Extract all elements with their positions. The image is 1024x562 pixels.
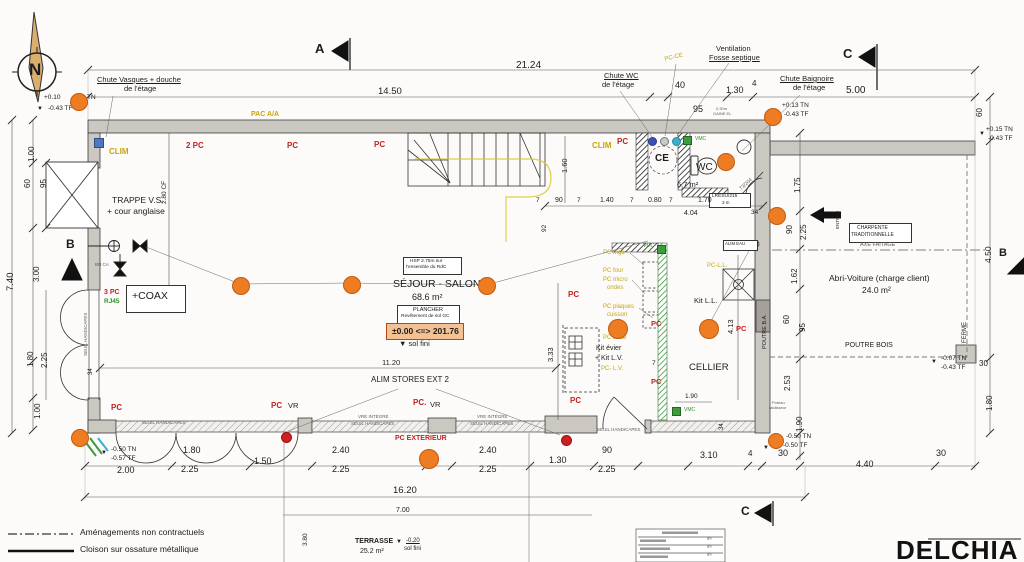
plan-label: + Kit L.V. xyxy=(595,355,623,362)
plan-label: 1.80 xyxy=(183,446,201,455)
plan-label: 1.75 xyxy=(794,177,802,193)
spot-marker xyxy=(717,153,735,171)
plan-label: 2.25 xyxy=(479,465,497,474)
utility-point-cyan xyxy=(672,137,681,146)
trappe-bay xyxy=(46,162,98,228)
plan-label: 1.00 xyxy=(34,403,42,419)
plan-label: VMC xyxy=(643,244,654,249)
plan-label: 4.40 xyxy=(856,460,874,469)
plan-label: 1.62 xyxy=(791,268,799,284)
level-arrow-icon: ▼ xyxy=(101,450,107,456)
level-mark: -0.50 TN xyxy=(111,447,136,454)
plan-label: PC xyxy=(617,138,628,146)
room-wc: WC xyxy=(696,163,713,173)
plan-label: cuisson xyxy=(607,312,627,318)
plan-label: 4.04 xyxy=(684,210,698,217)
plan-label: 16.20 xyxy=(393,486,417,496)
plan-label: CHARPENTE xyxy=(857,226,888,231)
plan-label: 60 xyxy=(976,108,984,117)
plan-label: m² xyxy=(707,545,712,549)
plan-label: -0.43 TF xyxy=(941,365,965,372)
plan-label: 90 xyxy=(786,225,794,234)
plan-label: GAINE EL xyxy=(713,112,731,116)
plan-label: VR xyxy=(430,401,440,409)
plan-label: 3.10 xyxy=(700,451,718,460)
plan-label: Fosse septique xyxy=(709,54,760,62)
plan-label: 0.80 xyxy=(648,197,662,204)
plan-label: CLIM xyxy=(109,148,129,156)
plan-label: SEUIL HANDICAPES xyxy=(351,422,394,427)
plan-label: Revêtement de sol GC xyxy=(401,315,450,320)
compass-icon xyxy=(12,12,62,102)
plan-label: 2.40 xyxy=(332,446,350,455)
plan-label: VRE INTÉGRÉ xyxy=(358,415,389,420)
pc-point xyxy=(561,435,572,446)
vmc-point xyxy=(683,136,692,145)
pc-point xyxy=(281,432,292,443)
legend-item-cloison: Cloison sur ossature métallique xyxy=(80,545,199,554)
plan-label: TN xyxy=(87,95,96,102)
coax-label: +COAX xyxy=(132,291,168,302)
level-mark: +0.15 TN xyxy=(986,127,1013,134)
spot-marker xyxy=(764,108,782,126)
spot-marker xyxy=(768,433,784,449)
plan-label: PC xyxy=(374,141,385,149)
plan-label: + cour anglaise xyxy=(107,207,165,216)
company-name: DELCHIA xyxy=(896,537,1019,562)
room-sejour-area: 68.6 m² xyxy=(412,293,443,302)
plan-label: 1.30 xyxy=(726,86,744,95)
room-cellier: CELLIER xyxy=(689,363,729,373)
dim: 14.50 xyxy=(378,87,402,97)
plan-label: FERME xyxy=(962,322,968,343)
section-c-label: C xyxy=(843,47,852,60)
plan-label: PC xyxy=(651,378,661,386)
plan-label: PC xyxy=(570,397,581,405)
plan-label: POUTRE B.A. xyxy=(763,314,769,349)
plan-label: -0.57 TF xyxy=(111,456,135,463)
plan-label: TRADITIONNELLE xyxy=(851,233,894,238)
plan-label: POUTRE BOIS xyxy=(845,342,893,349)
plan-label: 2.00 xyxy=(117,466,135,475)
note-ventilation: Ventilation xyxy=(716,45,751,53)
plan-label: sol fini xyxy=(404,546,421,552)
plan-label: 2.25 xyxy=(800,224,808,240)
plan-label: 2.25 xyxy=(181,465,199,474)
plan-label: 2.25 xyxy=(332,465,350,474)
plan-label: 1.80 xyxy=(27,351,35,367)
compass-north-label: N xyxy=(29,61,41,78)
plan-label: SEUIL HANDICAPES xyxy=(597,428,640,433)
plan-label: 3.33 xyxy=(547,347,555,362)
plan-label: 3.80 xyxy=(303,533,310,546)
plan-label: 1.30 xyxy=(549,456,567,465)
vmc-point xyxy=(657,245,666,254)
plan-label: 95 xyxy=(799,323,807,332)
plan-label: ▼ sol fini xyxy=(399,340,430,348)
plan-label: VR xyxy=(288,402,298,410)
room-terrasse: TERRASSE xyxy=(355,538,393,545)
level-arrow-icon: ▼ xyxy=(763,445,769,451)
plan-label: 1.90 xyxy=(685,394,698,401)
metal-partition xyxy=(658,243,667,420)
plan-label: -0.20 xyxy=(406,538,420,544)
plan-label: 2.53 xyxy=(784,375,792,391)
note-chute-wc: Chute WC xyxy=(604,72,639,80)
plan-label: 7 xyxy=(536,198,540,205)
plan-label: PC. xyxy=(413,399,426,407)
plan-label: -0.43 TF xyxy=(48,106,72,113)
plan-label: 60 xyxy=(24,179,32,188)
plan-label: -0.43 TF xyxy=(784,112,808,119)
legend-item-amenagements: Aménagements non contractuels xyxy=(80,528,204,537)
plan-label: m² xyxy=(707,537,712,541)
spot-marker xyxy=(419,449,439,469)
plan-label: 3 PC xyxy=(104,289,120,296)
plan-label: PC xyxy=(568,291,579,299)
clim-unit xyxy=(94,138,104,148)
plan-label: PC-L.L. xyxy=(707,263,727,269)
spot-marker xyxy=(699,319,719,339)
plan-label: VMC xyxy=(684,408,695,413)
leader-lines xyxy=(106,63,800,435)
plan-label: 1.90 xyxy=(796,416,804,432)
left-wall-opening xyxy=(89,290,99,400)
spot-marker xyxy=(478,277,496,295)
plan-label: de l'étage xyxy=(124,85,156,93)
plan-label: BN CA xyxy=(95,263,109,268)
plan-label: PC EXTERIEUR xyxy=(395,435,447,442)
utility-point-blue xyxy=(648,137,657,146)
kit-lave-linge: Kit L.L. xyxy=(694,297,717,305)
plan-label: PC xyxy=(736,325,746,333)
chauffe-eau-label: CE xyxy=(655,154,669,164)
level-mark: -0.50 TN xyxy=(786,434,811,441)
plan-label: 1.40 xyxy=(600,197,614,204)
plan-label: de l'étage xyxy=(602,81,634,89)
plan-label: PC- L.V. xyxy=(601,366,623,372)
note-trappe: TRAPPE V.S. xyxy=(112,196,164,205)
plan-label: 60 xyxy=(783,315,791,324)
plan-label: 7.00 xyxy=(396,507,410,514)
level-arrow-icon: ▼ xyxy=(37,106,43,112)
room-sejour: SÉJOUR - SALON xyxy=(393,279,481,290)
plan-label: PC frigo xyxy=(603,250,625,256)
kit-evier: Kit évier xyxy=(596,345,621,352)
plan-label: 2.25 xyxy=(41,352,49,368)
plan-label: VMC xyxy=(695,137,706,142)
plan-label: PC plaques xyxy=(603,304,634,310)
plan-label: 2.25 xyxy=(598,465,616,474)
plan-label: m² xyxy=(707,553,712,557)
plan-label: VRE INTÉGRÉ xyxy=(477,415,508,420)
plan-label: PC micro xyxy=(603,277,628,283)
plan-label: 4.50 xyxy=(984,246,993,263)
plan-label: 4 xyxy=(748,450,752,458)
plan-label: 1.50 xyxy=(254,457,272,466)
section-c-label-bottom: C xyxy=(741,505,750,517)
plan-label: 34 xyxy=(719,423,725,430)
plan-label: 2.40 xyxy=(479,446,497,455)
plan-label: 1.70 xyxy=(698,197,712,204)
plan-label: 7 xyxy=(630,198,634,205)
room-terrasse-area: 25.2 m² xyxy=(360,548,384,555)
spot-marker xyxy=(71,429,89,447)
plan-label: 34 xyxy=(751,210,758,217)
plan-label: 3.00 xyxy=(33,266,41,282)
plan-label: PC xyxy=(651,320,661,328)
plan-label: 1.80 xyxy=(986,395,994,411)
plan-label: 5.00 xyxy=(846,86,865,96)
plan-label: 30 xyxy=(979,360,988,368)
plan-label: -0.50 TF xyxy=(783,443,807,450)
utility-point-gray xyxy=(660,137,669,146)
plan-label: 40 xyxy=(675,81,685,90)
plan-label: PC xyxy=(271,402,282,410)
level-arrow-icon: ▼ xyxy=(396,539,402,545)
note-alim-stores: ALIM STORES EXT 2 xyxy=(371,376,449,384)
floor-plan-scan: NChute Vasques + douchede l'étageA21.241… xyxy=(0,0,1024,562)
plan-label: de l'étage xyxy=(793,84,825,92)
plan-label: 4.13 xyxy=(727,319,735,334)
plan-label: 11.20 xyxy=(382,359,400,367)
room-wc-area: 6.7 m² xyxy=(677,181,698,189)
note-chute-vasques: Chute Vasques + douche xyxy=(97,76,181,84)
plan-label: raidisseur xyxy=(769,406,786,410)
plan-label: PC xyxy=(287,142,298,150)
plan-label: ALIM EAU xyxy=(725,242,745,246)
section-a-label: A xyxy=(315,42,324,55)
section-b-label-right: B xyxy=(999,248,1007,259)
plan-label: PLANCHER xyxy=(413,308,443,314)
plan-label: AXE FAITAGE xyxy=(860,243,895,249)
plan-label: 7 xyxy=(652,361,656,368)
plan-label: SEUIL HANDICAPES xyxy=(142,421,185,426)
spot-marker xyxy=(343,276,361,294)
dim-total-width: 21.24 xyxy=(516,61,541,71)
plan-label: 2.80 CF xyxy=(162,181,169,204)
level-mark: +0.13 TN xyxy=(782,103,809,110)
level-mark: +0.10 xyxy=(44,95,60,102)
plan-label: 30 xyxy=(936,449,946,458)
plan-label: 3 m xyxy=(722,201,730,206)
plan-label: 2 PC xyxy=(186,142,204,150)
note-chute-baignoire: Chute Baignoire xyxy=(780,75,834,83)
plan-label: 92 xyxy=(542,225,549,232)
plan-label: 95 xyxy=(693,105,703,114)
spot-marker xyxy=(70,93,88,111)
plan-label: 7 xyxy=(669,198,673,205)
plan-label: 90 xyxy=(602,446,612,455)
plan-label: 1.60 xyxy=(561,158,569,173)
plan-label: PAC A/A xyxy=(251,111,279,118)
plan-label: SEUIL HANDICAPES xyxy=(470,422,513,427)
plan-label: 4 xyxy=(752,80,756,88)
spot-marker xyxy=(768,207,786,225)
level-arrow-icon: ▼ xyxy=(931,359,937,365)
plan-label: 7 xyxy=(577,198,581,205)
plan-label: PC four xyxy=(603,268,623,274)
level-mark: -0.07 TN xyxy=(941,356,966,363)
spot-marker xyxy=(232,277,250,295)
level-reference: ±0.00 <=> 201.76 xyxy=(392,327,459,336)
dim-total-height: 7.40 xyxy=(6,273,16,292)
plan-label: ENTREE xyxy=(836,211,841,229)
plan-label: 90 xyxy=(555,197,563,204)
section-b-label: B xyxy=(66,238,75,250)
vmc-point xyxy=(672,407,681,416)
plan-label: PC xyxy=(111,404,122,412)
plan-label: -0.43 TF xyxy=(988,136,1012,143)
plan-label: RJ45 xyxy=(104,299,120,306)
plan-label: SEUIL HANDICAPES xyxy=(84,313,89,356)
spot-marker xyxy=(608,319,628,339)
plan-label: CLIM xyxy=(592,142,612,150)
level-arrow-icon: ▼ xyxy=(979,131,985,137)
room-abri-voiture: Abri-Voiture (charge client) xyxy=(829,274,930,283)
plan-label: 95 xyxy=(40,179,48,188)
plan-label: 1.00 xyxy=(28,146,36,162)
plan-label: 30 xyxy=(778,449,788,458)
plan-label: 34 xyxy=(88,368,94,375)
plan-label: l'ensemble du RdC xyxy=(406,266,446,271)
plan-label: ondes xyxy=(607,285,623,291)
room-abri-area: 24.0 m² xyxy=(862,286,891,295)
